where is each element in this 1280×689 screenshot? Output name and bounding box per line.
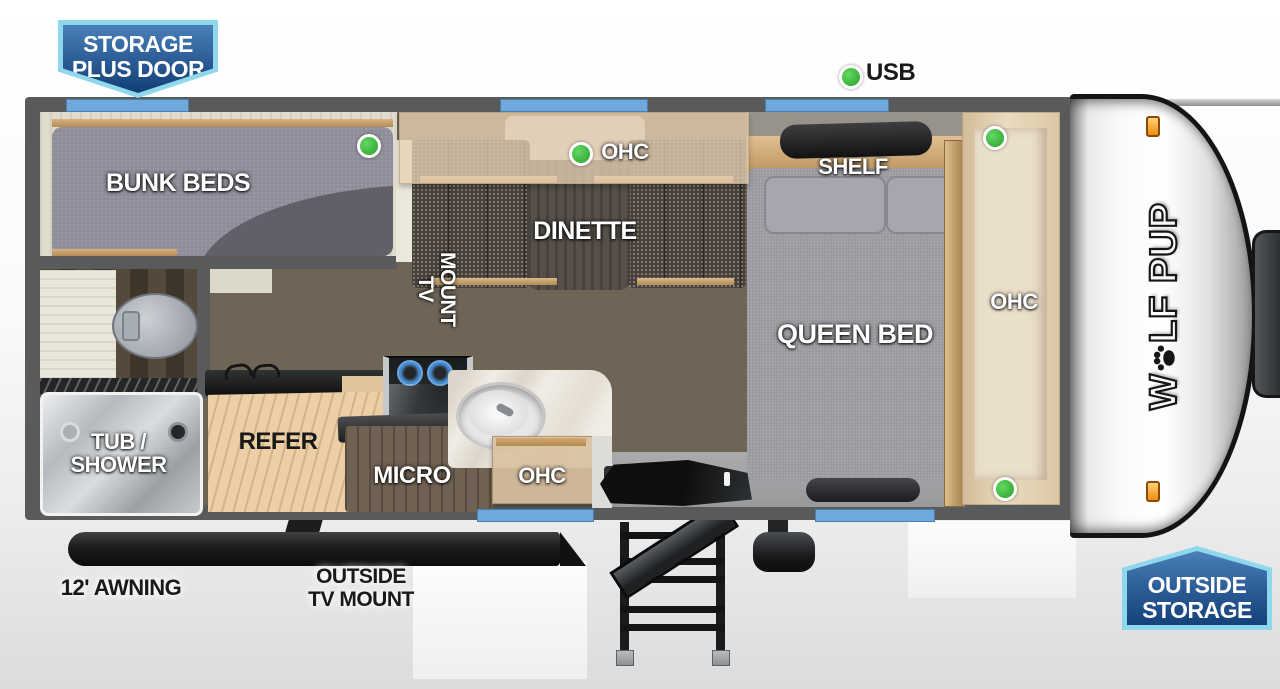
ceiling-light-icon xyxy=(993,477,1017,501)
outside-storage-badge: OUTSIDE STORAGE xyxy=(1122,546,1272,630)
paw-print-icon xyxy=(1149,343,1179,373)
bunk-trim xyxy=(52,119,393,127)
tv-mount-label-line1: TV xyxy=(414,224,436,354)
bunk-beds-label: BUNK BEDS xyxy=(93,170,263,196)
window xyxy=(66,99,189,112)
ceiling-light-icon xyxy=(983,126,1007,150)
usb-indicator-icon xyxy=(839,65,863,89)
tub-shower-label-line2: SHOWER xyxy=(40,453,197,476)
bunk-trim xyxy=(52,249,177,256)
logo-prefix: W xyxy=(1143,373,1185,410)
cabinet-trim xyxy=(496,438,586,446)
step-rail xyxy=(716,522,725,654)
drawer-pull-icon xyxy=(252,363,281,379)
outside-tv-mount-label-line2: TV MOUNT xyxy=(276,589,446,612)
wardrobe-ohc-label: OHC xyxy=(984,290,1044,313)
window xyxy=(765,99,889,112)
tv-mount-label: TV MOUNT xyxy=(414,224,458,354)
step-bar xyxy=(620,606,725,613)
step-bar xyxy=(620,624,725,631)
burner-icon xyxy=(397,360,423,386)
outside-storage-highlight xyxy=(908,521,1076,598)
pillow xyxy=(764,176,886,234)
shelf-label: SHELF xyxy=(793,155,913,178)
ceiling-light-icon xyxy=(569,142,593,166)
logo-suffix: LF PUP xyxy=(1143,202,1185,343)
outside-tv-mount-label-line1: OUTSIDE xyxy=(276,566,446,589)
step-foot xyxy=(616,650,634,666)
clearance-light-icon xyxy=(1146,116,1160,137)
storage-plus-door-badge-face: STORAGE PLUS DOOR xyxy=(63,25,213,93)
badge-line2: STORAGE xyxy=(1142,598,1252,623)
dinette-ohc-label: OHC xyxy=(598,140,652,163)
cabinet-trim xyxy=(637,278,734,285)
micro-label: MICRO xyxy=(342,463,482,488)
tub-shower-label: TUB / SHOWER xyxy=(40,430,197,476)
ceiling-light-icon xyxy=(357,134,381,158)
outside-tv-mount-label: OUTSIDE TV MOUNT xyxy=(276,566,446,611)
awning-motor xyxy=(753,532,815,572)
badge-line2: PLUS DOOR xyxy=(72,57,204,82)
badge-line1: STORAGE xyxy=(83,32,193,57)
clearance-light-icon xyxy=(1146,481,1160,502)
storage-plus-door-badge: STORAGE PLUS DOOR xyxy=(58,20,218,98)
queen-bed-label: QUEEN BED xyxy=(757,320,953,348)
step-foot xyxy=(712,650,730,666)
window xyxy=(815,509,935,522)
awning-roller xyxy=(68,532,560,566)
kitchen-ohc-label: OHC xyxy=(496,464,588,487)
wolf-pup-logo: WLF PUP xyxy=(1143,156,1189,456)
refer-label: REFER xyxy=(213,429,343,455)
sink-basin xyxy=(468,390,528,436)
outside-storage-badge-face: OUTSIDE STORAGE xyxy=(1127,551,1267,625)
window xyxy=(477,509,594,522)
badge-line1: OUTSIDE xyxy=(1148,573,1247,598)
usb-label: USB xyxy=(866,60,946,86)
tv-mount-label-line2: MOUNT xyxy=(436,224,458,354)
bolster-cushion xyxy=(806,478,920,502)
dinette-label: DINETTE xyxy=(520,218,650,244)
bathroom-wall-panel xyxy=(40,270,116,388)
rv-floorplan-canvas: BUNK BEDS TV MOUNT DINETTE OHC SHELF QUE… xyxy=(0,0,1280,689)
tub-shower-label-line1: TUB / xyxy=(40,430,197,453)
door-handle-icon xyxy=(724,472,730,486)
toilet xyxy=(112,293,198,359)
bunk-room-wall xyxy=(25,256,397,269)
window xyxy=(500,99,648,112)
bunk-step xyxy=(210,269,272,293)
hitch-cover xyxy=(1252,230,1280,398)
awning-label: 12' AWNING xyxy=(36,576,206,600)
entry-steps xyxy=(612,518,754,666)
